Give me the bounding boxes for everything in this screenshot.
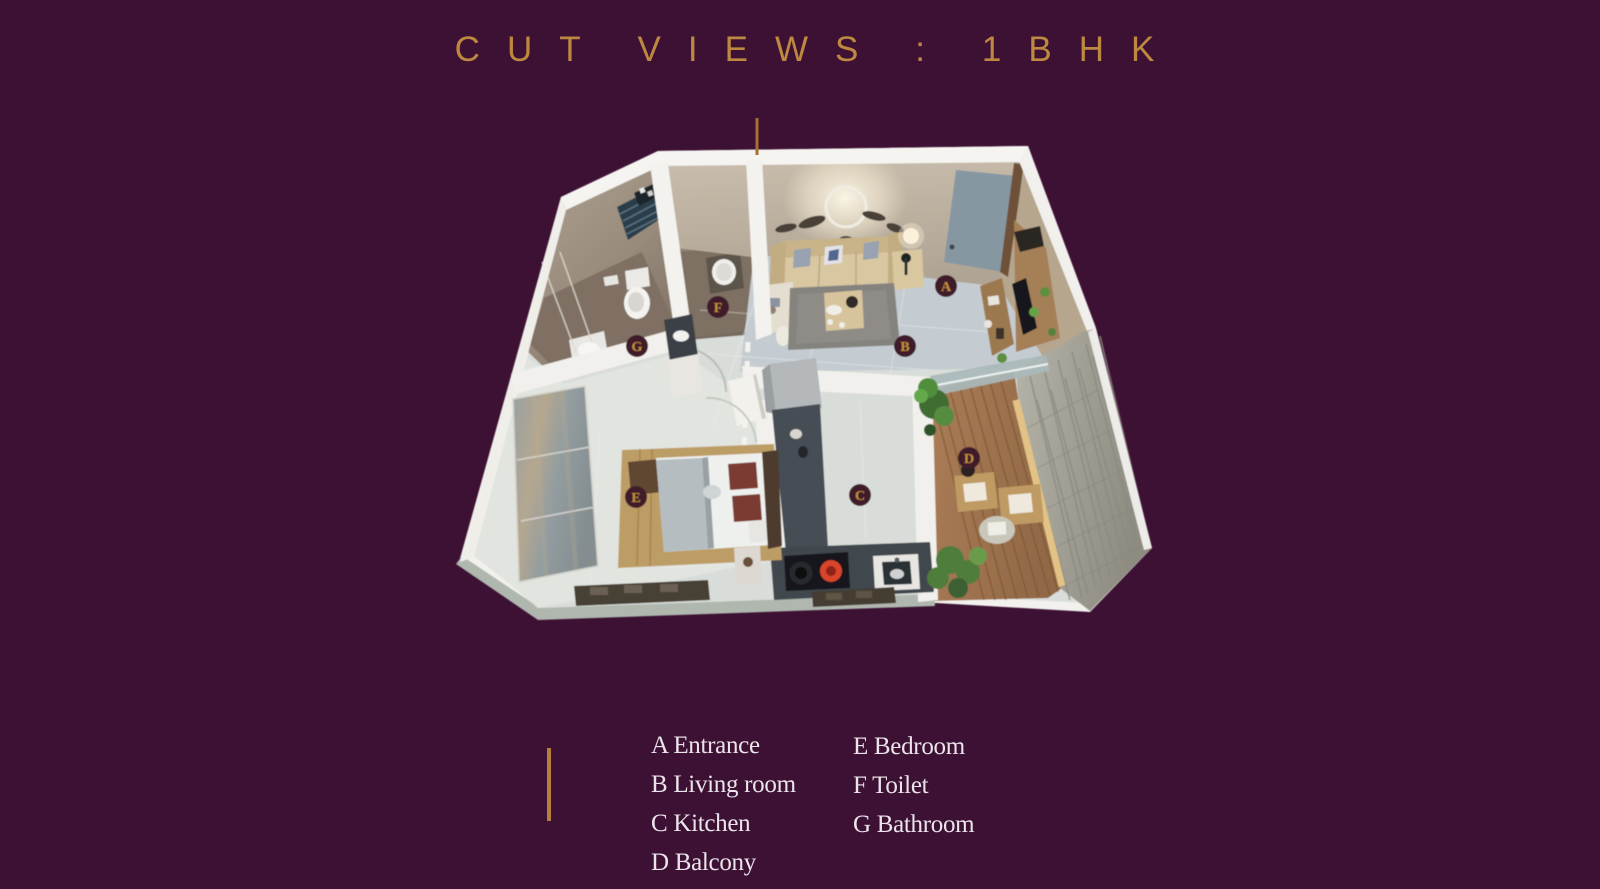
svg-text:E: E <box>631 491 640 506</box>
svg-text:A: A <box>941 280 952 295</box>
svg-text:D: D <box>964 452 974 467</box>
svg-text:C: C <box>855 489 865 504</box>
svg-text:B: B <box>900 340 909 355</box>
svg-text:G: G <box>632 340 643 355</box>
svg-text:F: F <box>714 301 723 316</box>
